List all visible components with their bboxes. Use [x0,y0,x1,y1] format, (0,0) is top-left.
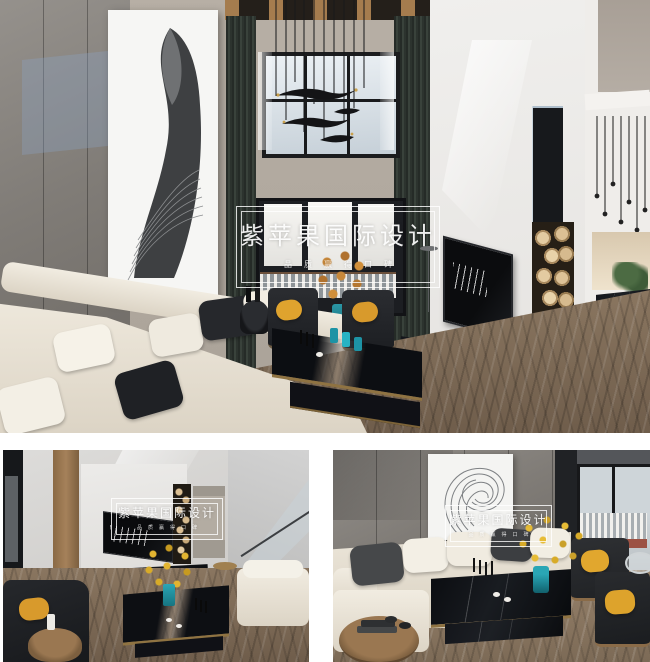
photo-sofa-view[interactable]: 紫苹果国际设计 品质赢得口碑 [333,450,650,662]
swallow-chandelier [268,0,383,155]
watermark-tagline: 品质赢得口碑 [462,531,534,538]
teal-vase [533,566,549,593]
watermark-tagline: 品质赢得口碑 [272,259,404,270]
book-stack-lower [357,626,397,633]
teal-glass-1 [330,328,338,343]
yellow-flowers [141,542,203,590]
teal-glass-3 [354,337,362,351]
white-vase [47,614,55,630]
balcony-railing [580,513,647,539]
candlesticks [195,598,197,610]
black-side-table [240,300,270,334]
side-table-bottle-2 [255,288,260,302]
upper-taupe-panel [598,0,650,92]
white-sofa-back [243,560,303,578]
watermark: 紫苹果国际设计 品质赢得口碑 [236,206,440,288]
abstract-artwork-graphic [108,10,218,300]
teal-vase [163,584,175,606]
watermark: 紫苹果国际设计 品质赢得口碑 [111,498,223,540]
window-reflection [22,50,117,155]
watermark-inner-border [241,211,435,283]
dining-plant [612,262,648,292]
white-cups [166,618,172,622]
yellow-cushion-lower [604,589,636,615]
pillow-dark-gray [349,541,405,586]
abstract-artwork [108,10,218,300]
fireplace-flames [453,262,487,297]
glass-side-table [625,552,650,574]
photo-tv-wall-view[interactable]: 紫苹果国际设计 品质赢得口碑 [3,450,309,662]
photo-living-room-main[interactable]: 紫苹果国际设计 品质赢得口碑 [0,0,650,433]
white-cups [493,592,500,597]
white-bowl [316,352,323,357]
watermark-tagline: 品质赢得口碑 [131,524,203,531]
teal-glass-2 [342,332,350,347]
window-pane [5,476,18,562]
dark-bowls [385,616,397,623]
dining-pendant-lights [592,116,650,236]
side-table-bottle-1 [246,286,251,302]
candlesticks [300,330,302,344]
candlesticks [473,558,475,572]
watermark: 紫苹果国际设计 品质赢得口碑 [445,505,552,547]
round-wood-table [28,628,82,662]
niche-upper-mirror [532,106,563,224]
photo-collage: 紫苹果国际设计 品质赢得口碑 [0,0,650,662]
pillow-white-1 [402,536,449,573]
gold-side-table [213,562,237,570]
